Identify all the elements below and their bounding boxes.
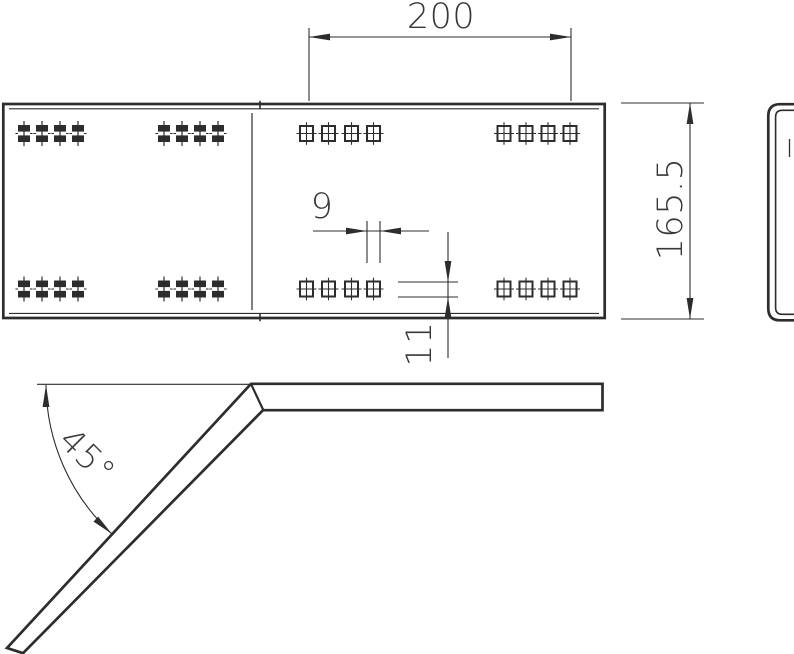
side-profile-view — [768, 104, 794, 320]
slot-hole-open — [297, 278, 317, 301]
arrowhead — [550, 34, 571, 41]
technical-drawing-canvas: 200 165.5 9 11 — [0, 0, 794, 654]
arrowhead — [687, 103, 694, 124]
slot-hole-open — [538, 278, 558, 301]
slot-hole-open — [560, 122, 580, 145]
dim-200: 200 — [309, 0, 571, 101]
dim-165-label: 165.5 — [651, 158, 691, 261]
slot-hole-open — [494, 122, 514, 145]
slot-hole-open — [560, 278, 580, 301]
side-profile-outer — [768, 104, 794, 320]
slot-hole-open — [342, 122, 362, 145]
arrowhead — [309, 34, 330, 41]
slot-hole-open — [364, 278, 384, 301]
angle-label: 45° — [51, 420, 123, 492]
side-profile-inner — [776, 110, 794, 314]
slot-hole-open — [342, 278, 362, 301]
arrowhead — [687, 298, 694, 319]
dim-9-label: 9 — [311, 187, 334, 227]
slot-hole-open — [538, 122, 558, 145]
slot-hole-open — [494, 278, 514, 301]
slot-hole-open — [297, 122, 317, 145]
drawing-svg: 200 165.5 9 11 — [0, 0, 794, 654]
dim-165-5: 165.5 — [621, 103, 704, 319]
bend-profile-view: 45° — [7, 384, 603, 653]
slot-hole-open — [364, 122, 384, 145]
slot-hole-open — [516, 122, 536, 145]
slot-hole-open — [516, 278, 536, 301]
arrowhead — [94, 517, 113, 534]
dim-200-label: 200 — [407, 0, 475, 37]
plan-view — [3, 101, 604, 321]
dim-11-label: 11 — [400, 321, 440, 367]
slot-hole-open — [319, 122, 339, 145]
arrowhead — [43, 385, 50, 407]
slot-hole-open — [319, 278, 339, 301]
